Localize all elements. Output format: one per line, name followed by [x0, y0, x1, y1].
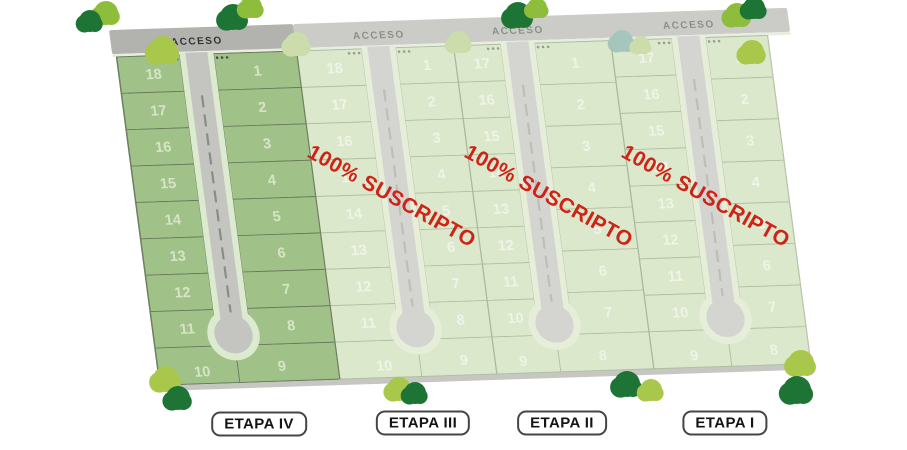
lot-number: 15 — [647, 123, 665, 139]
tree-icon — [524, 0, 549, 19]
lot-number: 17 — [331, 97, 349, 113]
lot-number: 18 — [145, 67, 163, 83]
acceso-label: ACCESO — [662, 19, 715, 32]
lot-number: 15 — [159, 176, 177, 192]
tree-canopy — [751, 4, 766, 19]
tree-canopy — [798, 358, 816, 376]
lot-number: 14 — [164, 212, 183, 228]
lot-number: 11 — [667, 269, 684, 285]
lot-number: 10 — [671, 305, 689, 321]
lot-number: 16 — [642, 87, 660, 103]
tree-icon — [740, 0, 767, 20]
tree-icon — [779, 376, 813, 405]
lot-number: 16 — [478, 92, 496, 108]
tree-icon — [637, 379, 664, 402]
etapa-iv-label: ETAPA IV — [211, 412, 307, 437]
lot-number: 12 — [355, 279, 373, 295]
tree-icon — [237, 0, 264, 19]
lot-number: 10 — [193, 364, 211, 380]
lot-number: 13 — [350, 243, 368, 259]
lot-number: 16 — [335, 134, 353, 150]
tree-canopy — [87, 17, 102, 32]
lot-number: 17 — [149, 103, 167, 119]
tree-canopy — [749, 47, 766, 64]
etapa-iii-label: ETAPA III — [376, 411, 470, 436]
lot-number: 10 — [506, 311, 524, 327]
tree-canopy — [412, 389, 427, 404]
lot-number: 11 — [360, 315, 377, 331]
lot-number: 12 — [497, 238, 515, 254]
lot-number: 13 — [657, 196, 675, 212]
acceso-label: ACCESO — [170, 35, 223, 48]
lot-number: 17 — [473, 56, 491, 72]
lot-number: 12 — [173, 285, 191, 301]
lot-number: 16 — [154, 140, 172, 156]
lot-number: 13 — [169, 249, 187, 265]
lot-number: 13 — [492, 202, 510, 218]
tree-canopy — [648, 386, 663, 401]
tree-canopy — [160, 44, 180, 64]
etapa-i-label: ETAPA I — [682, 411, 767, 436]
tree-canopy — [639, 41, 652, 54]
lot-number: 14 — [345, 206, 364, 222]
acceso-label: ACCESO — [352, 29, 405, 42]
site-plan-page: 181716151413121112345678ACCESO1091817161… — [0, 0, 907, 450]
tree-canopy — [175, 393, 192, 410]
tree-canopy — [456, 38, 471, 53]
lot-number: 15 — [482, 129, 500, 145]
lot-number: 11 — [179, 321, 196, 337]
tree-canopy — [794, 384, 814, 404]
site-plan-map: 181716151413121112345678ACCESO1091817161… — [0, 0, 907, 450]
lot-number: 18 — [326, 61, 344, 77]
tree-canopy — [103, 8, 120, 25]
tree-canopy — [294, 39, 311, 56]
tree-canopy — [535, 4, 549, 18]
lot-number: 12 — [662, 232, 680, 248]
tree-canopy — [248, 3, 263, 18]
etapa-ii-label: ETAPA II — [517, 411, 607, 436]
lot-number: 10 — [375, 358, 393, 374]
lot-number: 11 — [502, 274, 519, 290]
